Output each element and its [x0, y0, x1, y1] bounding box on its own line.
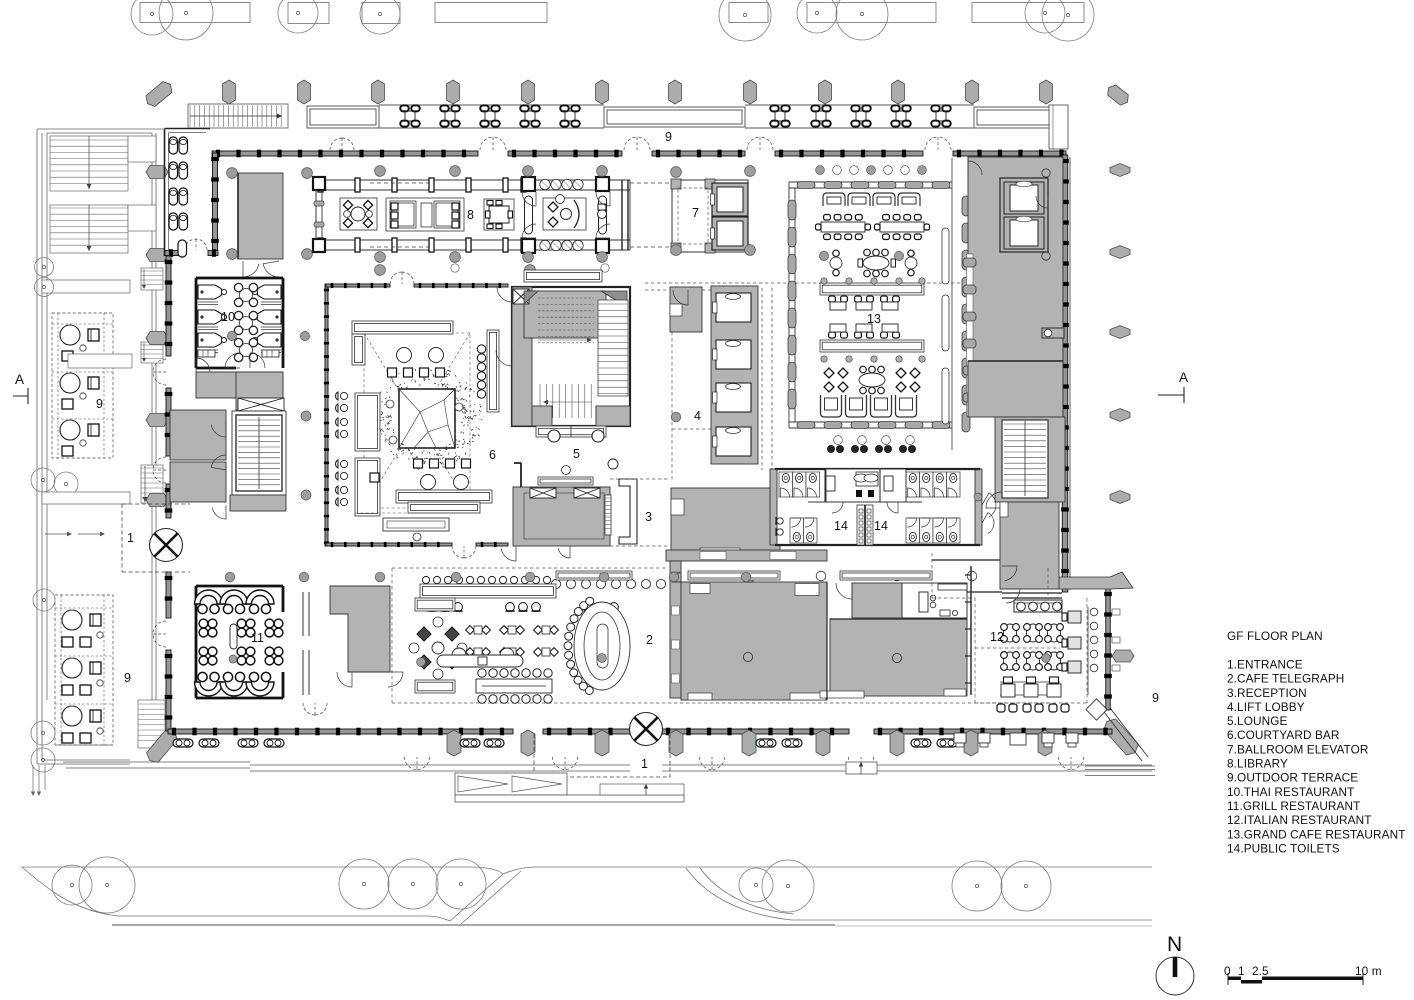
svg-text:7: 7 — [692, 206, 699, 220]
svg-text:2.CAFE TELEGRAPH: 2.CAFE TELEGRAPH — [1227, 672, 1344, 686]
svg-text:1.ENTRANCE: 1.ENTRANCE — [1227, 658, 1303, 672]
svg-text:10 m: 10 m — [1355, 964, 1382, 978]
svg-text:0: 0 — [1224, 964, 1231, 978]
svg-text:8.LIBRARY: 8.LIBRARY — [1227, 757, 1288, 771]
svg-text:10: 10 — [221, 310, 235, 324]
svg-text:12: 12 — [990, 630, 1004, 644]
svg-text:1: 1 — [127, 531, 134, 545]
svg-text:14: 14 — [834, 519, 848, 533]
svg-text:1: 1 — [641, 757, 648, 771]
svg-text:10.THAI RESTAURANT: 10.THAI RESTAURANT — [1227, 785, 1354, 799]
svg-text:11: 11 — [251, 631, 264, 645]
svg-text:9: 9 — [1152, 691, 1159, 705]
svg-text:4: 4 — [694, 409, 701, 423]
svg-text:2: 2 — [646, 633, 653, 647]
svg-text:12.ITALIAN RESTAURANT: 12.ITALIAN RESTAURANT — [1227, 813, 1372, 827]
svg-text:3: 3 — [645, 510, 652, 524]
svg-text:1: 1 — [1238, 964, 1245, 978]
svg-text:11.GRILL RESTAURANT: 11.GRILL RESTAURANT — [1227, 799, 1360, 813]
svg-text:9.OUTDOOR TERRACE: 9.OUTDOOR TERRACE — [1227, 771, 1358, 785]
svg-text:14.PUBLIC TOILETS: 14.PUBLIC TOILETS — [1227, 842, 1340, 856]
svg-text:6.COURTYARD BAR: 6.COURTYARD BAR — [1227, 728, 1340, 742]
svg-text:13.GRAND CAFE RESTAURANT: 13.GRAND CAFE RESTAURANT — [1227, 827, 1406, 841]
svg-text:9: 9 — [96, 397, 103, 411]
svg-text:3.RECEPTION: 3.RECEPTION — [1227, 686, 1307, 700]
svg-text:9: 9 — [665, 130, 672, 144]
svg-text:9: 9 — [124, 671, 131, 685]
svg-text:N: N — [1167, 933, 1182, 956]
svg-text:5.LOUNGE: 5.LOUNGE — [1227, 714, 1287, 728]
svg-text:14: 14 — [874, 519, 888, 533]
svg-text:A: A — [1179, 370, 1188, 385]
svg-text:6: 6 — [489, 448, 496, 462]
svg-text:2.5: 2.5 — [1252, 964, 1269, 978]
svg-text:8: 8 — [467, 208, 474, 222]
svg-text:5: 5 — [573, 447, 580, 461]
svg-text:GF FLOOR PLAN: GF FLOOR PLAN — [1227, 629, 1323, 643]
svg-text:4.LIFT LOBBY: 4.LIFT LOBBY — [1227, 700, 1305, 714]
svg-text:7.BALLROOM ELEVATOR: 7.BALLROOM ELEVATOR — [1227, 742, 1369, 756]
svg-text:A: A — [15, 372, 24, 387]
